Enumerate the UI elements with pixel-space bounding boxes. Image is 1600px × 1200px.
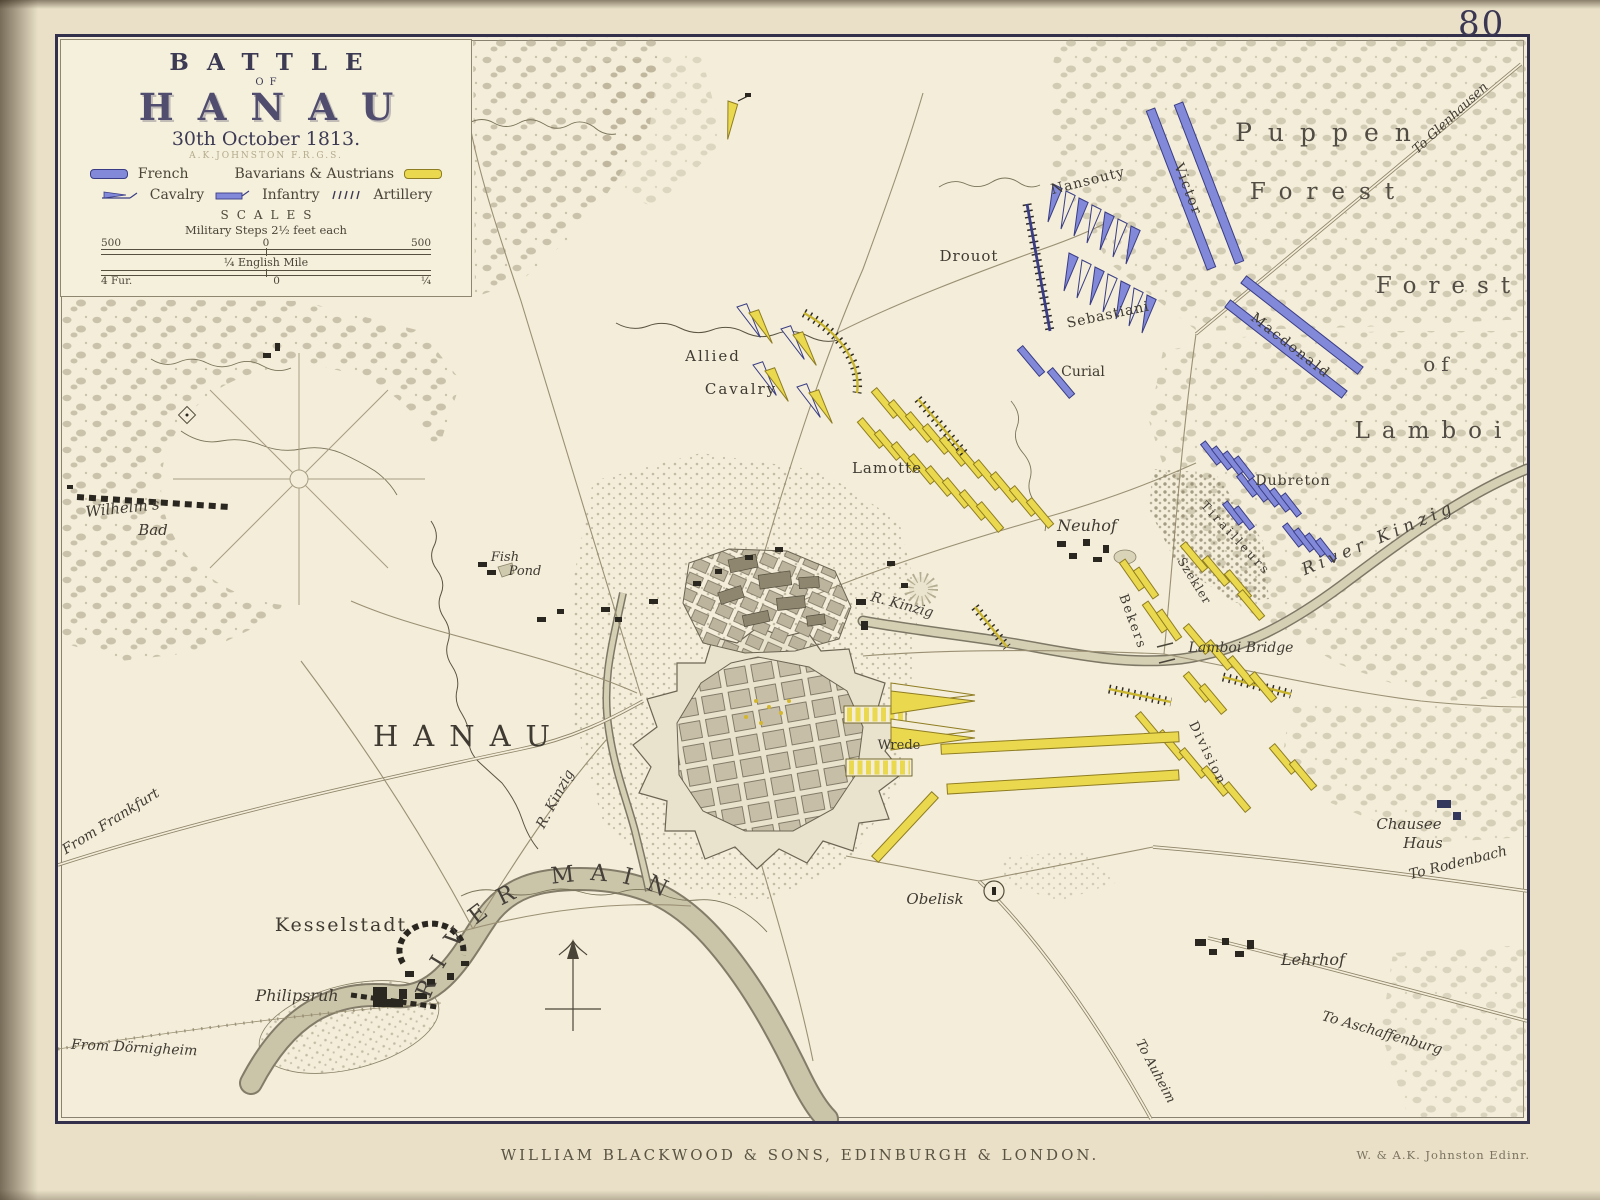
label-allied-cavalry-2: Cavalry <box>705 380 777 398</box>
label-forest-upper: Forest <box>1250 179 1408 205</box>
scale2-left: 4 Fur. <box>101 276 132 288</box>
label-forest-lower: Forest <box>1376 273 1522 299</box>
label-obelisk: Obelisk <box>906 890 963 908</box>
label-wrede: Wrede <box>878 738 921 753</box>
page-top-shadow <box>0 0 1600 9</box>
bavarians-label: Bavarians & Austrians <box>234 166 394 182</box>
scale-mile-caption: ¼ English Mile <box>61 256 471 269</box>
title-author: A.K.JOHNSTON F.R.G.S. <box>61 151 471 161</box>
label-fish-pond-1: Fish <box>490 550 519 565</box>
label-puppen: Puppen <box>1235 118 1427 147</box>
scale2-mid: 0 <box>273 276 280 288</box>
park-radial-paths <box>173 353 425 605</box>
legend-row-arms: Cavalry Infantry Artillery <box>61 187 471 203</box>
label-curial: Curial <box>1061 364 1105 380</box>
hill-sunburst <box>909 577 933 601</box>
page-gutter-shadow <box>0 0 38 1200</box>
scale-bar-steps: 500 0 500 <box>101 238 431 256</box>
legend-row-sides: French Bavarians & Austrians <box>61 166 471 182</box>
page-bottom-shadow <box>0 1190 1600 1200</box>
scale1-left: 500 <box>101 238 121 250</box>
label-kesselstadt: Kesselstadt <box>275 914 407 936</box>
infantry-label: Infantry <box>262 187 319 203</box>
label-of: of <box>1423 352 1454 376</box>
scale2-right: ¼ <box>421 276 431 288</box>
scales-heading: SCALES <box>61 208 471 222</box>
map-frame: HANAU Puppen Forest Forest of Lamboi Kes… <box>55 34 1530 1124</box>
label-lamotte: Lamotte <box>852 459 922 477</box>
scale1-right: 500 <box>411 238 431 250</box>
label-chausee-haus-2: Haus <box>1402 834 1443 852</box>
bavarians-color-swatch <box>404 169 442 179</box>
scale-bar-steps-rule <box>101 249 431 255</box>
label-lehrhof: Lehrhof <box>1280 950 1348 969</box>
label-lamboi-bridge: Lamboi Bridge <box>1188 640 1294 656</box>
engraver-imprint: W. & A.K. Johnston Edinr. <box>1260 1148 1530 1162</box>
label-fish-pond-2: Pond <box>508 564 542 579</box>
label-hanau: HANAU <box>373 719 565 753</box>
label-lamboi: Lamboi <box>1355 418 1514 444</box>
label-allied-cavalry-1: Allied <box>684 347 741 365</box>
label-chausee-haus-1: Chausee <box>1376 815 1441 833</box>
title-battle: BATTLE <box>61 49 471 76</box>
scale-bar-mile-rule <box>101 270 431 276</box>
title-date: 30th October 1813. <box>61 128 471 150</box>
french-color-swatch <box>90 169 128 179</box>
page-number: 80 <box>1458 4 1505 44</box>
cavalry-icon <box>100 188 140 202</box>
artillery-icon <box>329 189 363 201</box>
obelisk-marker <box>984 881 1004 901</box>
label-neuhof: Neuhof <box>1056 516 1120 535</box>
title-cartouche: BATTLE OF HANAU 30th October 1813. A.K.J… <box>60 39 472 297</box>
cavalry-label: Cavalry <box>150 187 204 203</box>
label-wilhelms-bad-2: Bad <box>137 521 168 539</box>
scale-steps-caption: Military Steps 2½ feet each <box>61 223 471 237</box>
artillery-label: Artillery <box>373 187 432 203</box>
infantry-icon <box>214 189 252 201</box>
label-drouot: Drouot <box>940 247 999 265</box>
french-label: French <box>138 166 189 182</box>
label-philipsruh: Philipsruh <box>254 986 338 1005</box>
map-sheet: 80 <box>0 0 1600 1200</box>
label-dubreton: Dubreton <box>1255 473 1330 489</box>
title-hanau: HANAU <box>61 88 471 127</box>
scale-bar-mile: 4 Fur. 0 ¼ <box>101 270 431 288</box>
